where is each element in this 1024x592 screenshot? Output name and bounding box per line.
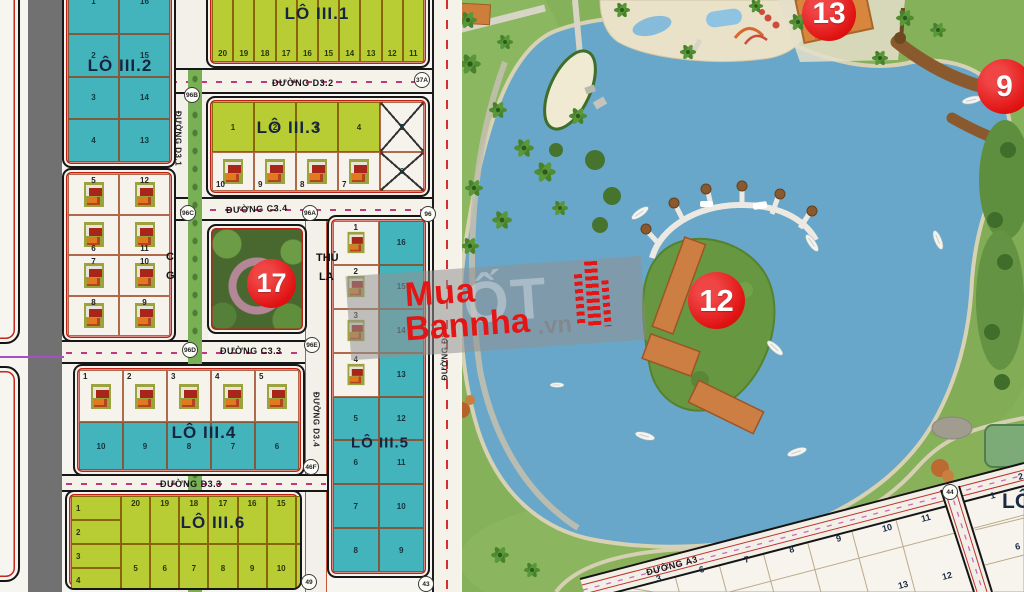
- villa-icon: [91, 384, 111, 409]
- block-cells: 12345109876: [79, 370, 299, 470]
- junction-96b: 96B: [184, 87, 200, 103]
- plot-cell: 12: [382, 0, 403, 62]
- west-block-fragment: [0, 366, 20, 582]
- plot-cell: 6: [380, 152, 424, 191]
- villa-icon: [347, 364, 364, 385]
- label-lo-iii4: LÔ III.4: [172, 423, 237, 443]
- plot-cell: 1: [79, 370, 123, 422]
- villa-icon: [179, 384, 199, 409]
- plot-cell: 14: [296, 496, 302, 544]
- villa-icon: [307, 159, 327, 184]
- plot-cell: 20: [121, 496, 150, 544]
- plot-cell: 2: [123, 370, 167, 422]
- map-marker-9: 9: [977, 59, 1024, 114]
- plot-cell: 5: [121, 544, 150, 590]
- road-d33-label: ĐƯỜNG D3.3: [160, 479, 222, 489]
- junction-96: 96: [420, 206, 436, 222]
- plot-cell: 8: [208, 544, 237, 590]
- block-cells: 12345109876: [212, 102, 424, 191]
- plot-cell: 19: [233, 0, 254, 62]
- block-lo-iii3: 12345109876: [206, 96, 430, 197]
- villa-icon: [347, 232, 364, 253]
- plot-cell: 7: [338, 152, 380, 191]
- note-thu: THỦ: [316, 252, 339, 264]
- block-cells: 51261171089: [68, 174, 170, 336]
- junction-96a: 96A: [302, 205, 318, 221]
- block-lo-iii6: 1234 201918171615141356789101112: [65, 490, 302, 590]
- plot-cell: 3: [71, 544, 121, 568]
- villa-icon: [135, 303, 155, 328]
- plot-cell: 13: [379, 353, 425, 397]
- plot-cell: 1: [68, 0, 119, 34]
- villa-icon: [135, 384, 155, 409]
- plot-cell: 2: [71, 520, 121, 544]
- villa-icon: [135, 182, 155, 207]
- plot-cell: 11: [119, 215, 170, 256]
- junction-44: 44: [942, 484, 958, 500]
- block-lo-iii5: 11621531441351261171089: [327, 215, 430, 578]
- plot-cell: 8: [296, 152, 338, 191]
- map-marker-12: 12: [688, 272, 745, 329]
- plot-cell: 3: [167, 370, 211, 422]
- junction-96c: 96C: [180, 205, 196, 221]
- villa-icon: [265, 159, 285, 184]
- road-truong-luu: [28, 0, 62, 592]
- plot-cell: 4: [68, 119, 119, 162]
- west-block-fragment: [0, 0, 20, 344]
- plot-cell: 13: [360, 0, 381, 62]
- label-lo-iii1: LÔ III.1: [285, 4, 350, 24]
- plot-cell: 19: [150, 496, 179, 544]
- villa-icon: [84, 182, 104, 207]
- plot-cell: 8: [68, 296, 119, 337]
- plot-cell: 14: [119, 77, 170, 120]
- note-c: C: [166, 251, 174, 263]
- road-d32-label: ĐƯỜNG D3.2: [272, 78, 334, 88]
- plot-cell: 10: [267, 544, 296, 590]
- plot-cell: 9: [238, 544, 267, 590]
- watermark-tld: .vn: [536, 311, 573, 341]
- plot-cell: 10: [379, 484, 425, 528]
- block-cells: 116215314413: [68, 0, 170, 162]
- villa-icon: [135, 263, 155, 288]
- plot-cell: 18: [254, 0, 275, 62]
- road-d34-label: ĐƯỜNG D3.4: [312, 388, 321, 452]
- block-cells: 201918171615141356789101112: [121, 496, 302, 590]
- plot-cell: 6: [68, 215, 119, 256]
- plot-cell: 20: [212, 0, 233, 62]
- plot-cell: 1: [71, 496, 121, 520]
- plot-cell: 7: [68, 255, 119, 296]
- plot-cell: 1: [333, 221, 379, 265]
- plot-cell: 1: [212, 102, 254, 152]
- plot-cell: 4: [211, 370, 255, 422]
- plot-cell: 7: [179, 544, 208, 590]
- plot-cell: 16: [379, 221, 425, 265]
- junction-37a: 37A: [414, 72, 430, 88]
- plot-cell: 5: [380, 102, 424, 152]
- villa-icon: [84, 303, 104, 328]
- label-lo-iii3: LÔ III.3: [257, 118, 322, 138]
- villa-icon: [223, 159, 243, 184]
- plot-cell: 3: [68, 77, 119, 120]
- road-d31-label: ĐƯỜNG D3.1: [174, 106, 183, 172]
- junction-96d: 96D: [182, 342, 198, 358]
- junction-96e: 96E: [304, 337, 320, 353]
- block-cells: 1234: [71, 496, 121, 590]
- junction-49: 49: [301, 574, 317, 590]
- plot-cell: 11: [403, 0, 424, 62]
- boundary-line: [0, 356, 64, 358]
- villa-icon: [223, 384, 243, 409]
- map-marker-17: 17: [247, 259, 296, 308]
- plot-cell: 8: [333, 528, 379, 572]
- plot-cell: 5: [68, 174, 119, 215]
- estate-map-image: 367891011 1312 216 ĐƯỜNG TRƯỜNG LƯU 2019…: [0, 0, 1024, 592]
- plot-cell: 4: [338, 102, 380, 152]
- plot-cell: 7: [333, 484, 379, 528]
- watermark-building-icon: [573, 260, 618, 333]
- note-g: G: [166, 270, 175, 282]
- villa-icon: [84, 263, 104, 288]
- block-lo-iii2: 116215314413: [62, 0, 176, 168]
- label-lo-iii6: LÔ III.6: [181, 513, 246, 533]
- villa-icon: [349, 159, 369, 184]
- label-lo-iii5: LÔ III.5: [351, 435, 409, 452]
- villa-icon: [267, 384, 287, 409]
- plot-cell: 12: [119, 174, 170, 215]
- junction-43: 43: [418, 576, 434, 592]
- plot-cell: 10: [79, 422, 123, 470]
- block-villas-west: 51261171089: [62, 168, 176, 342]
- label-lo-east: LÔ: [1002, 490, 1024, 514]
- plot-cell: 16: [119, 0, 170, 34]
- plot-cell: 9: [123, 422, 167, 470]
- block-lo-iii4: 12345109876: [73, 364, 305, 476]
- plot-cell: 9: [119, 296, 170, 337]
- plot-cell: 5: [255, 370, 299, 422]
- plot-cell: 6: [150, 544, 179, 590]
- road-c33-label: ĐƯỜNG C3.3: [220, 346, 282, 356]
- junction-46f: 46F: [303, 459, 319, 475]
- plot-cell: 13: [119, 119, 170, 162]
- note-la: LA: [319, 271, 334, 283]
- plot-cell: 6: [255, 422, 299, 470]
- watermark-line2: Bannha: [404, 302, 531, 350]
- plot-cell: 9: [379, 528, 425, 572]
- plot-cell: 15: [267, 496, 296, 544]
- plot-cell: 10: [212, 152, 254, 191]
- plot-cell: 9: [254, 152, 296, 191]
- plot-cell: 4: [71, 568, 121, 590]
- plot-cell: 10: [119, 255, 170, 296]
- label-lo-iii2: LÔ III.2: [88, 56, 153, 76]
